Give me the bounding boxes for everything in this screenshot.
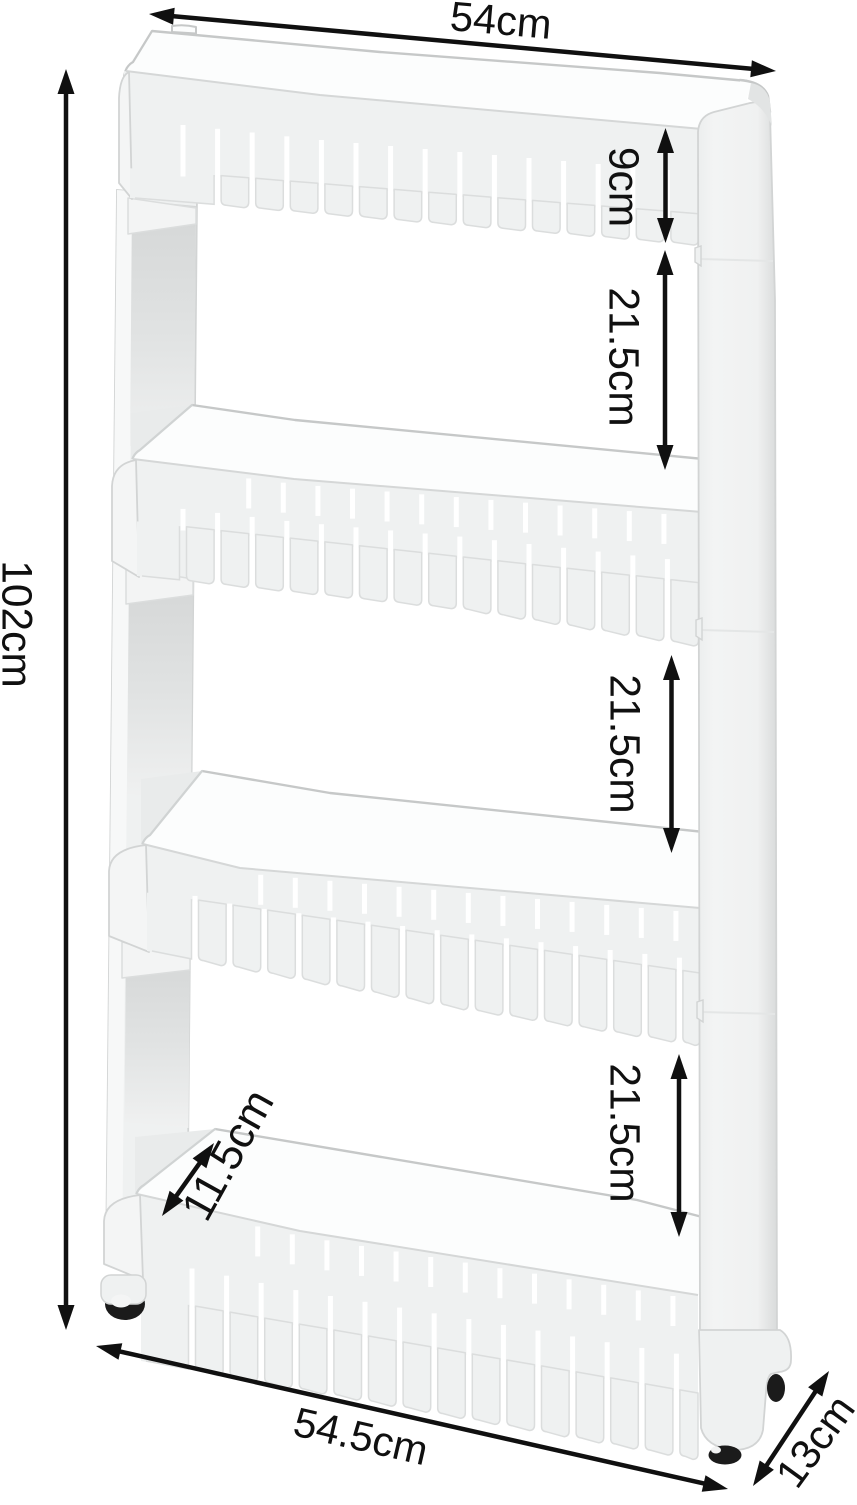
svg-text:21.5cm: 21.5cm bbox=[600, 287, 647, 426]
svg-text:102cm: 102cm bbox=[0, 560, 40, 688]
svg-text:9cm: 9cm bbox=[600, 147, 647, 227]
svg-text:21.5cm: 21.5cm bbox=[601, 674, 648, 813]
svg-text:21.5cm: 21.5cm bbox=[601, 1063, 648, 1202]
